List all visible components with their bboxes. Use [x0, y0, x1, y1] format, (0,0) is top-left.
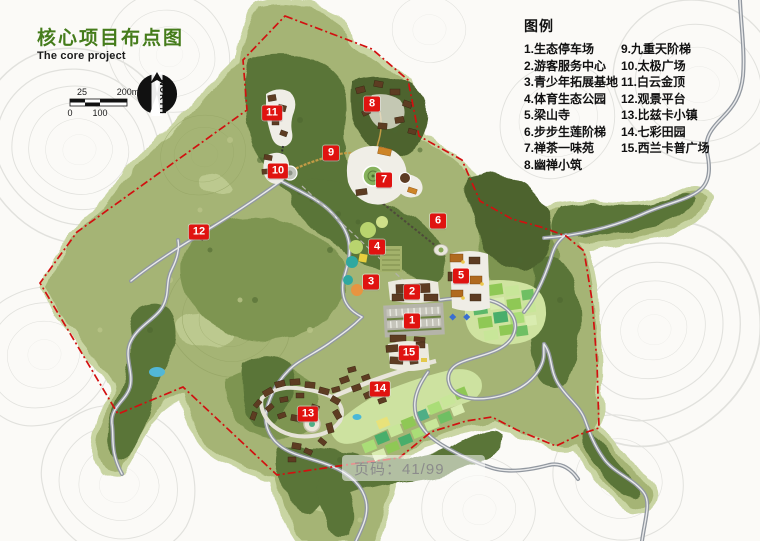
- map-marker-3: 3: [363, 275, 379, 290]
- scale-label-100: 100: [92, 108, 107, 118]
- legend-item-1: 1.生态停车场: [524, 41, 620, 58]
- legend-item-2: 2.游客服务中心: [524, 58, 620, 75]
- map-marker-11: 11: [262, 106, 282, 121]
- map-marker-2: 2: [404, 285, 420, 300]
- map-marker-10: 10: [268, 164, 288, 179]
- map-marker-6: 6: [430, 214, 446, 229]
- header: 核心项目布点图 The core project: [37, 28, 184, 63]
- north-label: NORTH: [158, 79, 168, 114]
- legend-item-12: 12.观景平台: [621, 91, 741, 108]
- legend-item-11: 11.白云金顶: [621, 74, 741, 91]
- legend-heading: 图例: [524, 16, 741, 36]
- map-marker-15: 15: [399, 346, 419, 361]
- pond: [149, 367, 165, 377]
- map-marker-13: 13: [298, 407, 318, 422]
- masterplan-page: NORTH 25 200m 0 100 核心项目布点图 The core pro…: [0, 0, 760, 541]
- page-number-badge: 页码：41/99: [342, 455, 485, 481]
- page-number-label: 页码：41/99: [342, 458, 445, 479]
- legend-columns: 1.生态停车场2.游客服务中心3.青少年拓展基地4.体育生态公园5.梁山寺6.步…: [524, 41, 741, 173]
- scale-label-200m: 200m: [117, 87, 140, 97]
- legend-item-5: 5.梁山寺: [524, 107, 620, 124]
- legend-item-3: 3.青少年拓展基地: [524, 74, 620, 91]
- map-marker-8: 8: [364, 97, 380, 112]
- map-marker-5: 5: [453, 269, 469, 284]
- page-title: 核心项目布点图: [37, 28, 184, 50]
- legend-item-14: 14.七彩田园: [621, 124, 741, 141]
- legend-item-10: 10.太极广场: [621, 58, 741, 75]
- page-subtitle: The core project: [37, 50, 184, 63]
- legend-item-13: 13.比兹卡小镇: [621, 107, 741, 124]
- lotus-platform-6: [434, 245, 448, 256]
- legend-column: 9.九重天阶梯10.太极广场11.白云金顶12.观景平台13.比兹卡小镇14.七…: [621, 41, 741, 173]
- legend: 图例 1.生态停车场2.游客服务中心3.青少年拓展基地4.体育生态公园5.梁山寺…: [524, 16, 741, 173]
- map-marker-9: 9: [323, 146, 339, 161]
- legend-item-9: 9.九重天阶梯: [621, 41, 741, 58]
- legend-item-15: 15.西兰卡普广场: [621, 140, 741, 157]
- legend-item-8: 8.幽禅小筑: [524, 157, 620, 174]
- legend-item-4: 4.体育生态公园: [524, 91, 620, 108]
- map-marker-4: 4: [369, 240, 385, 255]
- map-marker-14: 14: [370, 382, 390, 397]
- scale-label-25: 25: [77, 87, 87, 97]
- map-marker-1: 1: [404, 314, 420, 329]
- legend-column: 1.生态停车场2.游客服务中心3.青少年拓展基地4.体育生态公园5.梁山寺6.步…: [524, 41, 620, 173]
- legend-item-7: 7.禅茶一味苑: [524, 140, 620, 157]
- legend-item-6: 6.步步生莲阶梯: [524, 124, 620, 141]
- map-marker-7: 7: [376, 173, 392, 188]
- map-marker-12: 12: [189, 225, 209, 240]
- scale-label-0: 0: [67, 108, 72, 118]
